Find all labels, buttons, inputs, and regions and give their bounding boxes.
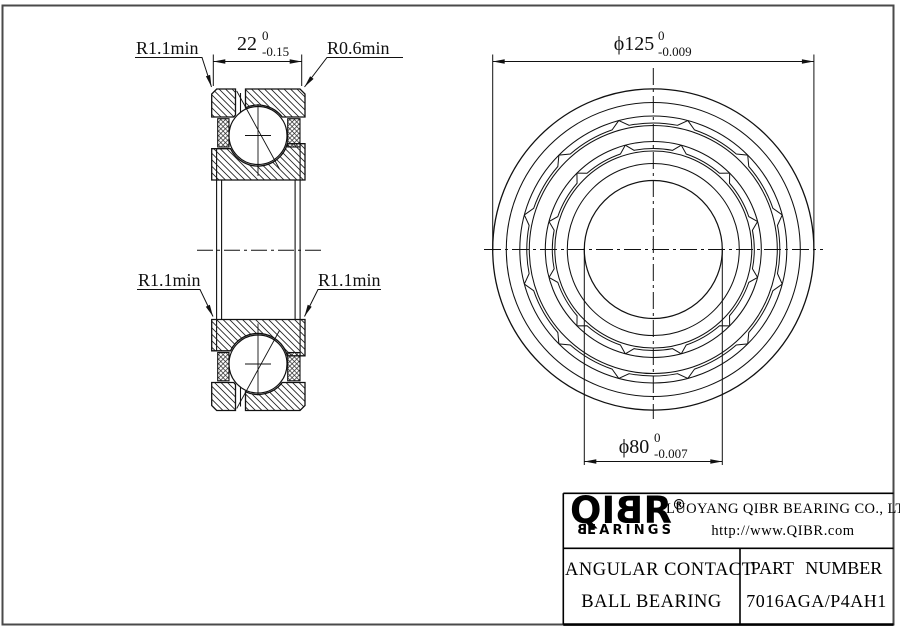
product-type-line1: ANGULAR CONTACT bbox=[565, 560, 738, 581]
ball-pocket bbox=[549, 173, 577, 221]
leader-arrow-mid-left bbox=[206, 305, 213, 317]
outer-ring-section bbox=[212, 89, 236, 117]
fillet-label-mid-left: R1.1min bbox=[138, 270, 201, 290]
product-type-line2: BALL BEARING bbox=[565, 592, 738, 613]
leader-top-left bbox=[135, 58, 212, 88]
bore-dim-upper-tol: 0 bbox=[654, 430, 661, 445]
width-dim-value: 22 bbox=[237, 33, 257, 55]
ball-pocket bbox=[524, 155, 559, 215]
cage-section-left bbox=[218, 119, 229, 147]
bearing-drawing: 22 0 -0.15 R1.1min R0.6min R1.1min R1.1m… bbox=[0, 0, 900, 636]
dim-arrow-right bbox=[290, 59, 302, 63]
ball-pocket bbox=[730, 173, 758, 221]
bore-dim-lower-tol: -0.007 bbox=[654, 446, 688, 461]
qibr-logo-subtitle: BEARINGS bbox=[574, 523, 674, 538]
ball-pocket bbox=[748, 155, 783, 215]
od-dim-value: ϕ125 bbox=[614, 33, 655, 55]
ball-pocket bbox=[688, 344, 748, 379]
part-number-value: 7016AGA/P4AH1 bbox=[740, 591, 893, 612]
ball-pocket bbox=[752, 222, 757, 278]
width-dim-upper-tol: 0 bbox=[262, 28, 269, 43]
fillet-label-top-left: R1.1min bbox=[136, 38, 199, 58]
bore-dim-value: ϕ80 bbox=[619, 436, 650, 458]
bearing-section-top bbox=[212, 89, 305, 180]
leader-arrow-top-right bbox=[305, 76, 314, 87]
ball-pocket bbox=[688, 121, 748, 156]
od-dim-upper-tol: 0 bbox=[658, 28, 665, 43]
drawing-page: 22 0 -0.15 R1.1min R0.6min R1.1min R1.1m… bbox=[0, 0, 900, 636]
bearing-section-bottom bbox=[212, 320, 305, 411]
cage-section-left bbox=[218, 353, 229, 381]
part-number-label: PART NUMBER bbox=[740, 558, 893, 579]
dim-arrow-left bbox=[213, 59, 225, 63]
od-dim-lower-tol: -0.009 bbox=[658, 44, 692, 59]
cage-section-right bbox=[288, 119, 300, 147]
leader-mid-right bbox=[305, 290, 382, 317]
front-view bbox=[484, 68, 823, 419]
outer-ring-section bbox=[212, 383, 236, 411]
company-name: LUOYANG QIBR BEARING CO., LTD bbox=[666, 501, 900, 518]
leader-arrow-top-left bbox=[206, 75, 212, 87]
ball-pocket bbox=[524, 284, 559, 344]
dim-arrow-left bbox=[584, 459, 596, 463]
leader-mid-left bbox=[137, 290, 213, 317]
logo-sub-flipped-b: B bbox=[574, 523, 587, 538]
leader-top-right bbox=[305, 58, 404, 88]
section-view bbox=[197, 89, 321, 411]
logo-sub-text: EARINGS bbox=[587, 523, 674, 538]
ball-pocket bbox=[559, 344, 619, 379]
width-dimension bbox=[213, 55, 301, 87]
ball-pocket bbox=[559, 121, 619, 156]
dim-arrow-right bbox=[802, 59, 814, 63]
leader-arrow-mid-right bbox=[305, 305, 312, 317]
fillet-label-top-right: R0.6min bbox=[327, 38, 390, 58]
ball-pocket bbox=[748, 284, 783, 344]
dim-arrow-left bbox=[493, 59, 505, 63]
ball-pocket bbox=[730, 277, 758, 325]
cage-section-right bbox=[288, 353, 300, 381]
ball-pocket bbox=[549, 277, 577, 325]
width-dim-lower-tol: -0.15 bbox=[262, 44, 289, 59]
company-website: http://www.QIBR.com bbox=[693, 523, 873, 540]
ball-pocket bbox=[681, 145, 729, 173]
fillet-label-mid-right: R1.1min bbox=[318, 270, 381, 290]
dim-arrow-right bbox=[710, 459, 722, 463]
ball-pocket bbox=[577, 145, 625, 173]
